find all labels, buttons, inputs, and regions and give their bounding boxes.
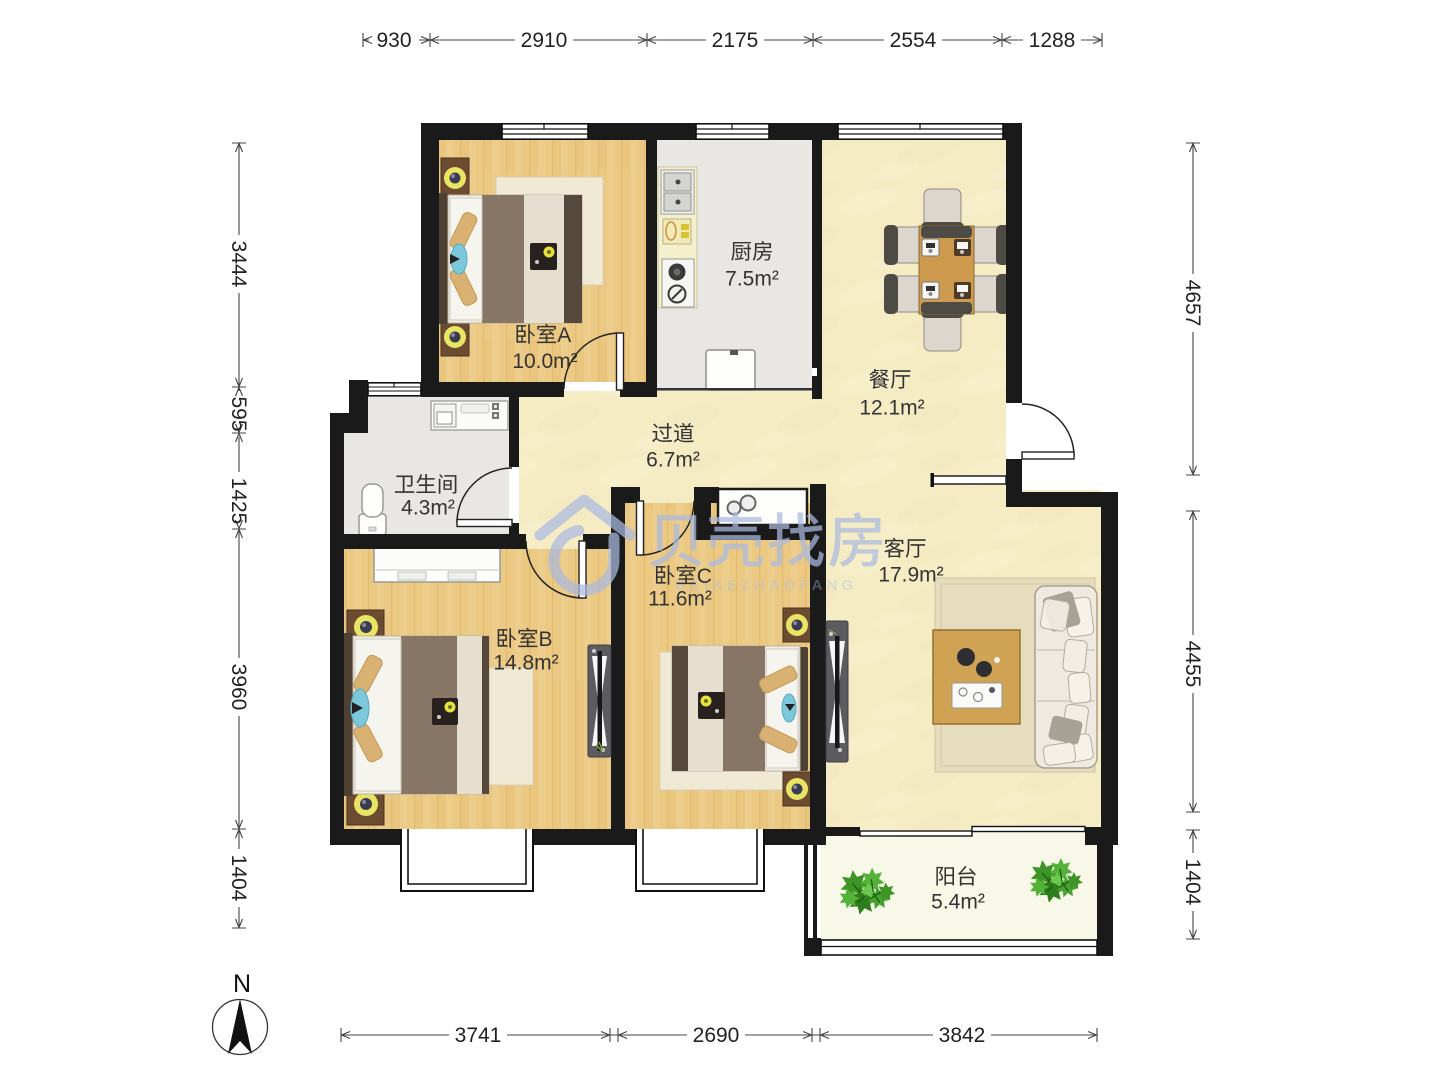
svg-text:1404: 1404 <box>227 855 250 902</box>
svg-text:11.6m²: 11.6m² <box>648 588 712 611</box>
svg-text:1288: 1288 <box>1029 29 1076 52</box>
svg-text:4657: 4657 <box>1181 280 1204 327</box>
svg-text:2690: 2690 <box>693 1024 740 1047</box>
svg-text:7.5m²: 7.5m² <box>725 268 779 291</box>
svg-text:C: C <box>697 565 712 588</box>
svg-text:3960: 3960 <box>227 664 250 711</box>
svg-text:10.0m²: 10.0m² <box>512 350 577 373</box>
svg-text:4455: 4455 <box>1181 641 1204 688</box>
svg-text:1425: 1425 <box>227 478 250 525</box>
svg-text:5.4m²: 5.4m² <box>931 891 985 914</box>
svg-text:2554: 2554 <box>890 29 937 52</box>
svg-text:N: N <box>233 970 251 998</box>
svg-text:12.1m²: 12.1m² <box>859 397 924 420</box>
svg-text:2175: 2175 <box>712 29 759 52</box>
svg-text:A: A <box>557 324 571 347</box>
svg-text:930: 930 <box>376 29 411 52</box>
svg-text:17.9m²: 17.9m² <box>878 564 943 587</box>
svg-text:3842: 3842 <box>939 1024 986 1047</box>
svg-text:4.3m²: 4.3m² <box>401 497 455 520</box>
svg-text:1404: 1404 <box>1181 859 1204 906</box>
svg-text:14.8m²: 14.8m² <box>493 652 558 675</box>
svg-text:595: 595 <box>227 396 250 431</box>
svg-text:3741: 3741 <box>455 1024 502 1047</box>
svg-text:6.7m²: 6.7m² <box>646 449 700 472</box>
svg-text:3444: 3444 <box>227 241 250 288</box>
svg-text:2910: 2910 <box>521 29 568 52</box>
svg-text:B: B <box>539 628 553 651</box>
